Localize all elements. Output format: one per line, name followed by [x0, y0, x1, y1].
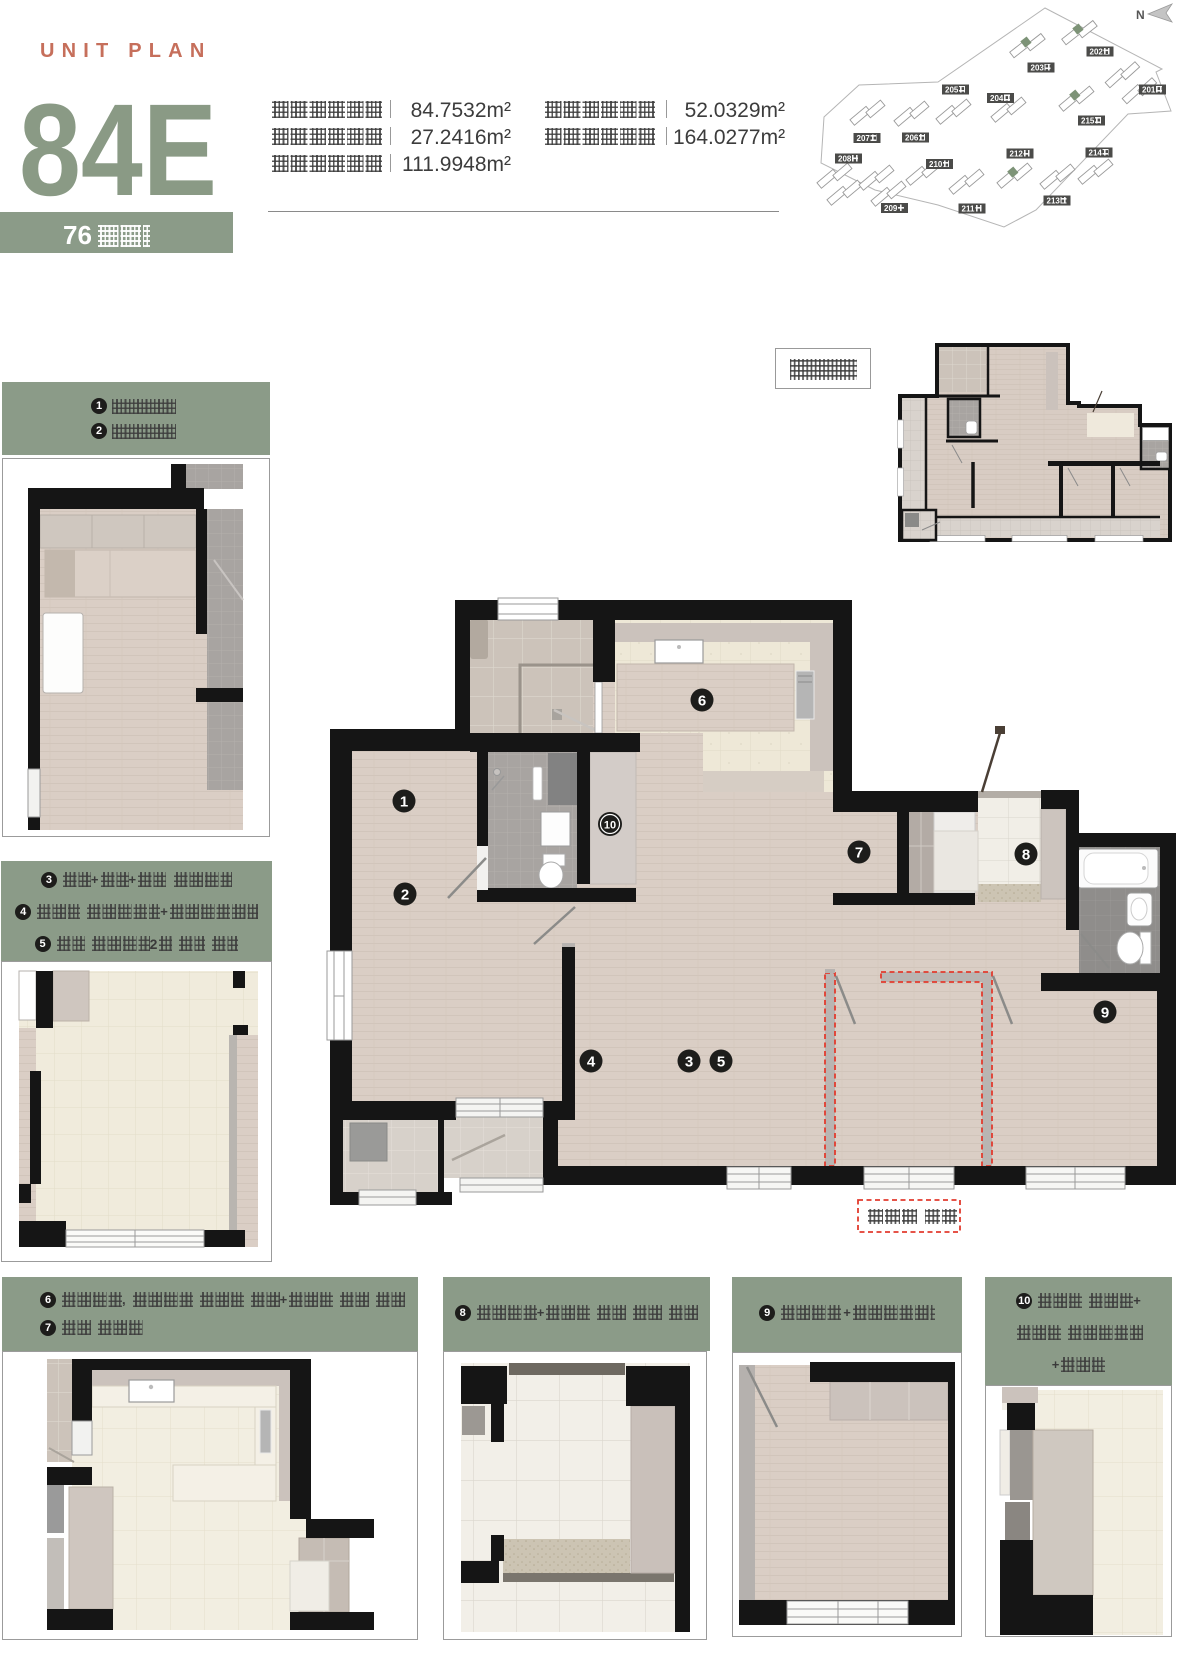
- svg-text:8: 8: [1022, 847, 1030, 864]
- svg-text:210: 210: [929, 160, 943, 169]
- svg-text:6: 6: [698, 693, 706, 710]
- svg-text:205: 205: [945, 86, 959, 95]
- svg-text:4: 4: [587, 1054, 596, 1071]
- svg-text:207: 207: [857, 134, 871, 143]
- svg-text:2: 2: [401, 887, 409, 904]
- svg-text:209: 209: [884, 204, 898, 213]
- svg-text:213: 213: [1047, 197, 1061, 206]
- svg-text:7: 7: [855, 845, 863, 862]
- svg-text:215: 215: [1081, 117, 1095, 126]
- svg-text:N: N: [1136, 8, 1145, 22]
- svg-text:203: 203: [1031, 64, 1045, 73]
- svg-text:9: 9: [1101, 1005, 1109, 1022]
- svg-text:201: 201: [1142, 86, 1156, 95]
- svg-text:202: 202: [1090, 48, 1104, 57]
- svg-text:208: 208: [838, 155, 852, 164]
- svg-text:204: 204: [990, 94, 1004, 103]
- svg-text:214: 214: [1089, 149, 1103, 158]
- svg-text:212: 212: [1010, 150, 1024, 159]
- svg-text:206: 206: [905, 134, 919, 143]
- svg-text:211: 211: [962, 205, 975, 214]
- svg-text:5: 5: [717, 1054, 725, 1071]
- svg-text:10: 10: [604, 820, 616, 832]
- svg-text:3: 3: [685, 1054, 693, 1071]
- svg-text:84E: 84E: [19, 76, 217, 220]
- svg-text:1: 1: [400, 794, 408, 811]
